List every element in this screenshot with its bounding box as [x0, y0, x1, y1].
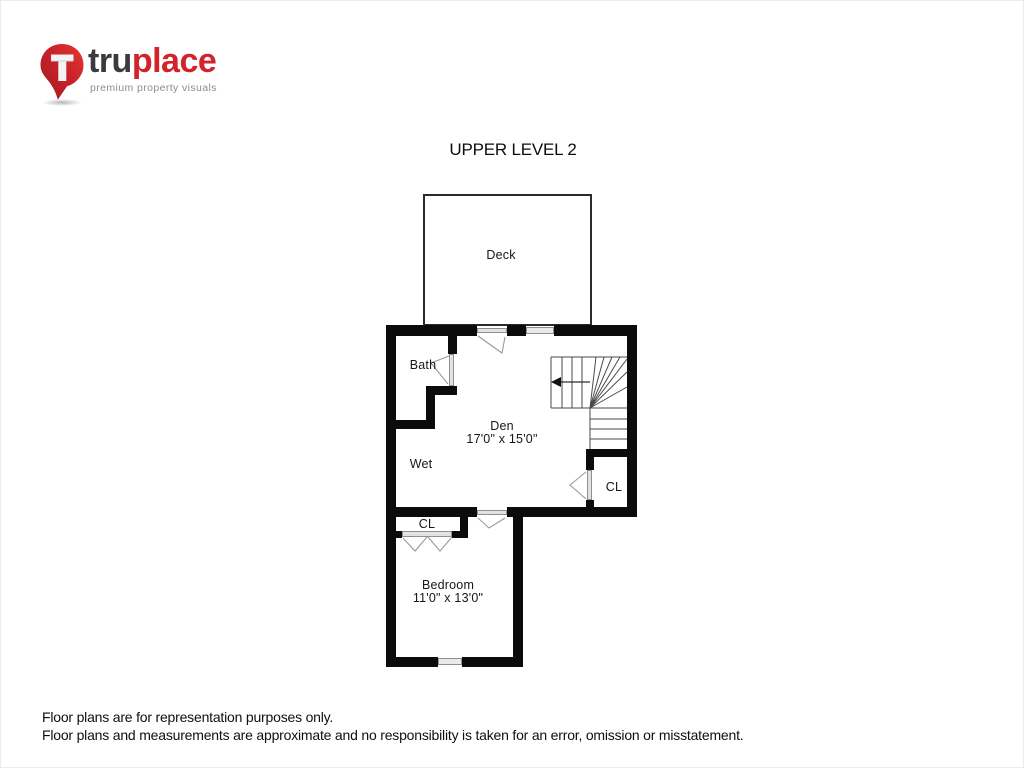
- disclaimer-line-1: Floor plans are for representation purpo…: [42, 709, 743, 727]
- closet-door-swing: [570, 472, 586, 499]
- room-dims-bedroom: 11'0" x 13'0": [413, 591, 483, 605]
- room-dims-den: 17'0" x 15'0": [466, 432, 537, 446]
- room-label-closet-den: CL: [606, 480, 622, 494]
- stairs-direction-arrow: [551, 377, 590, 387]
- room-label-closet-bedroom: CL: [419, 517, 435, 531]
- plan-linework: [0, 0, 1024, 768]
- room-label-bath: Bath: [410, 358, 437, 372]
- room-label-deck: Deck: [486, 248, 515, 262]
- deck-door-swing: [478, 336, 505, 353]
- bifold-door-swing: [428, 537, 452, 551]
- staircase: [551, 357, 627, 449]
- disclaimer-line-2: Floor plans and measurements are approxi…: [42, 727, 743, 745]
- floor-plan: Deck Bath Den 17'0" x 15'0" Wet CL CL Be…: [0, 0, 1024, 768]
- bifold-door-swing: [403, 537, 427, 551]
- room-label-bedroom: Bedroom: [422, 578, 474, 592]
- room-label-wet: Wet: [410, 457, 433, 471]
- floor-plan-page: truplace premium property visuals UPPER …: [0, 0, 1024, 768]
- room-label-den: Den: [490, 419, 514, 433]
- disclaimer: Floor plans are for representation purpo…: [42, 709, 743, 744]
- bedroom-door-swing: [478, 518, 505, 528]
